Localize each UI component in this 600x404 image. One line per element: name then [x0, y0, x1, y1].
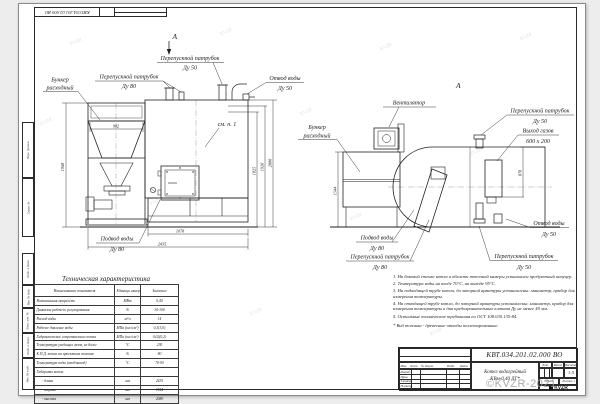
- front-boiler-body: [145, 100, 248, 222]
- dim-1968: 1968: [60, 162, 65, 171]
- callout-pp80-side-l1: Перепускной патрубок: [350, 254, 410, 261]
- dim-1825: 1825: [252, 167, 257, 175]
- side-bunker: [343, 152, 400, 227]
- dim-2435: 2435: [158, 242, 166, 247]
- furnace-door: [158, 166, 199, 200]
- callout-pp50-front-l1: Перепускной патрубок: [160, 55, 220, 62]
- drawing-page: КВТ.034.201.02.000 ВО Перв. примен. Спра…: [0, 0, 600, 400]
- note-3: 3. На подводящей трубе котла, до запорно…: [393, 288, 576, 299]
- notes-block: 1. На боковой стенке котла в области топ…: [393, 274, 576, 330]
- table-row: Номинальная мощностьМВт0,40: [35, 297, 179, 306]
- table-row: - длинамм2435: [35, 377, 179, 386]
- callout-otvod-side-l2: Ду 50: [541, 232, 556, 238]
- fuel-footnote: * Вид топлива - древесные отходы пеллети…: [393, 323, 576, 329]
- lit-cells: [539, 368, 552, 378]
- table-row: Расход водым³/ч14: [35, 314, 179, 323]
- signature-rows: Разраб. Пров. Т.контр. Н.контр. Утв.: [399, 369, 471, 391]
- dim-1920: 1920: [260, 162, 265, 171]
- table-row: - высотамм2080: [35, 394, 179, 403]
- doc-number-cell: КВТ.034.201.02.000 ВО: [471, 348, 578, 362]
- gas-outlet: [485, 160, 524, 203]
- change-log-header: Изм. Лист № докум. Подп. Дата: [399, 362, 471, 369]
- callout-bunker-side-l2: расходный: [302, 133, 330, 140]
- dim-2080: 2080: [268, 158, 273, 167]
- table-row: Гидравлическое сопротивление котлаМПа (к…: [35, 332, 179, 341]
- leader-lines: [43, 63, 574, 262]
- callout-otvod-front-l1: Отвод воды: [269, 75, 300, 82]
- callout-podvod-front-l2: Ду 80: [109, 247, 124, 253]
- front-top-fittings: [164, 84, 255, 100]
- tech-table-title: Техническая характеристика: [34, 275, 178, 283]
- callout-pp50-side-top-l1: Перепускной патрубок: [510, 108, 570, 115]
- callout-bunker-front-l2: расходный: [45, 85, 73, 92]
- table-row: Габариты котла: [35, 368, 179, 377]
- note-5: 5. Остальные технические требования по О…: [393, 314, 576, 320]
- side-boiler-body: [388, 147, 552, 227]
- callout-pp50-side-top-l2: Ду 50: [532, 119, 547, 125]
- side-fittings: [474, 135, 502, 223]
- callout-gas-outlet-l1: Выход газов: [523, 128, 554, 135]
- note-2: 2. Температура воды на входе 70°С, на вы…: [393, 281, 576, 287]
- dim-902: 902: [113, 124, 119, 129]
- callout-podvod-side-l1: Подвод воды: [360, 235, 394, 242]
- callout-see-note: см. п. 1: [218, 122, 237, 128]
- callout-bunker-side-l1: Бункер: [307, 125, 325, 131]
- section-letter-a: А: [172, 32, 178, 41]
- table-row: Рабочее давление водыМПа (кгс/см²)0,3(3,…: [35, 323, 179, 332]
- callout-podvod-front-l1: Подвод воды: [100, 236, 134, 243]
- table-row: - ширинамм1544: [35, 385, 179, 394]
- tech-table-header-row: Наименование показателя Единица измерени…: [35, 285, 179, 297]
- fuel-feeder: [414, 167, 447, 232]
- scale-cell: 1:5: [564, 368, 578, 378]
- callout-pp80-front-l2: Ду 80: [121, 84, 136, 90]
- col-header-value: Значение: [141, 285, 179, 297]
- sheets-cell: Листов 1: [559, 378, 578, 385]
- callout-pp80-side-l2: Ду 80: [372, 265, 387, 271]
- table-row: Температура воды (вход/выход)°С70-95: [35, 359, 179, 368]
- col-header-unit: Единица измерения: [115, 285, 141, 297]
- note-4: 4. На отводящей трубе котла, до запорной…: [393, 301, 576, 312]
- product-name-line1: Котел водогрейный: [484, 370, 526, 376]
- callout-pp80-front-l1: Перепускной патрубок: [99, 74, 159, 81]
- change-log-rows: [399, 348, 471, 362]
- front-bunker: [86, 103, 147, 225]
- section-arrow: [167, 41, 171, 55]
- note-1: 1. На боковой стенке котла в области топ…: [393, 274, 576, 280]
- table-row: Температура уходящих газов, не более°С23…: [35, 341, 179, 350]
- callout-otvod-front-l2: Ду 50: [277, 86, 292, 92]
- col-header-name: Наименование показателя: [35, 285, 115, 297]
- dim-878: 878: [518, 169, 523, 176]
- callout-fan: Вентилятор: [393, 101, 425, 107]
- tech-table: Наименование показателя Единица измерени…: [34, 284, 179, 404]
- view-letter-a: А: [455, 81, 461, 90]
- table-row: К.П.Д. котла на проектном топливе%80: [35, 350, 179, 359]
- dim-1078: 1078: [176, 229, 185, 234]
- callout-pp50-side-bot-l2: Ду 50: [516, 265, 531, 271]
- callout-otvod-side-l1: Отвод воды: [533, 220, 564, 227]
- watermark-corner: ©KVZR-2021: [486, 378, 557, 390]
- callout-bunker-front-l1: Бункер: [50, 78, 68, 84]
- mass-cell: [552, 368, 564, 378]
- table-row: Диапазон рабочего регулирования%30-100: [35, 305, 179, 314]
- callout-gas-outlet-l2: 600 x 200: [526, 139, 550, 145]
- front-view: [62, 41, 277, 250]
- callout-pp50-side-bot-l1: Перепускной патрубок: [494, 253, 554, 260]
- callout-pp50-front-l2: Ду 50: [182, 66, 197, 72]
- side-fan: [374, 124, 404, 152]
- drain-valve: [150, 187, 155, 192]
- dim-1544: 1544: [333, 187, 338, 195]
- callout-podvod-side-l2: Ду 80: [369, 246, 384, 252]
